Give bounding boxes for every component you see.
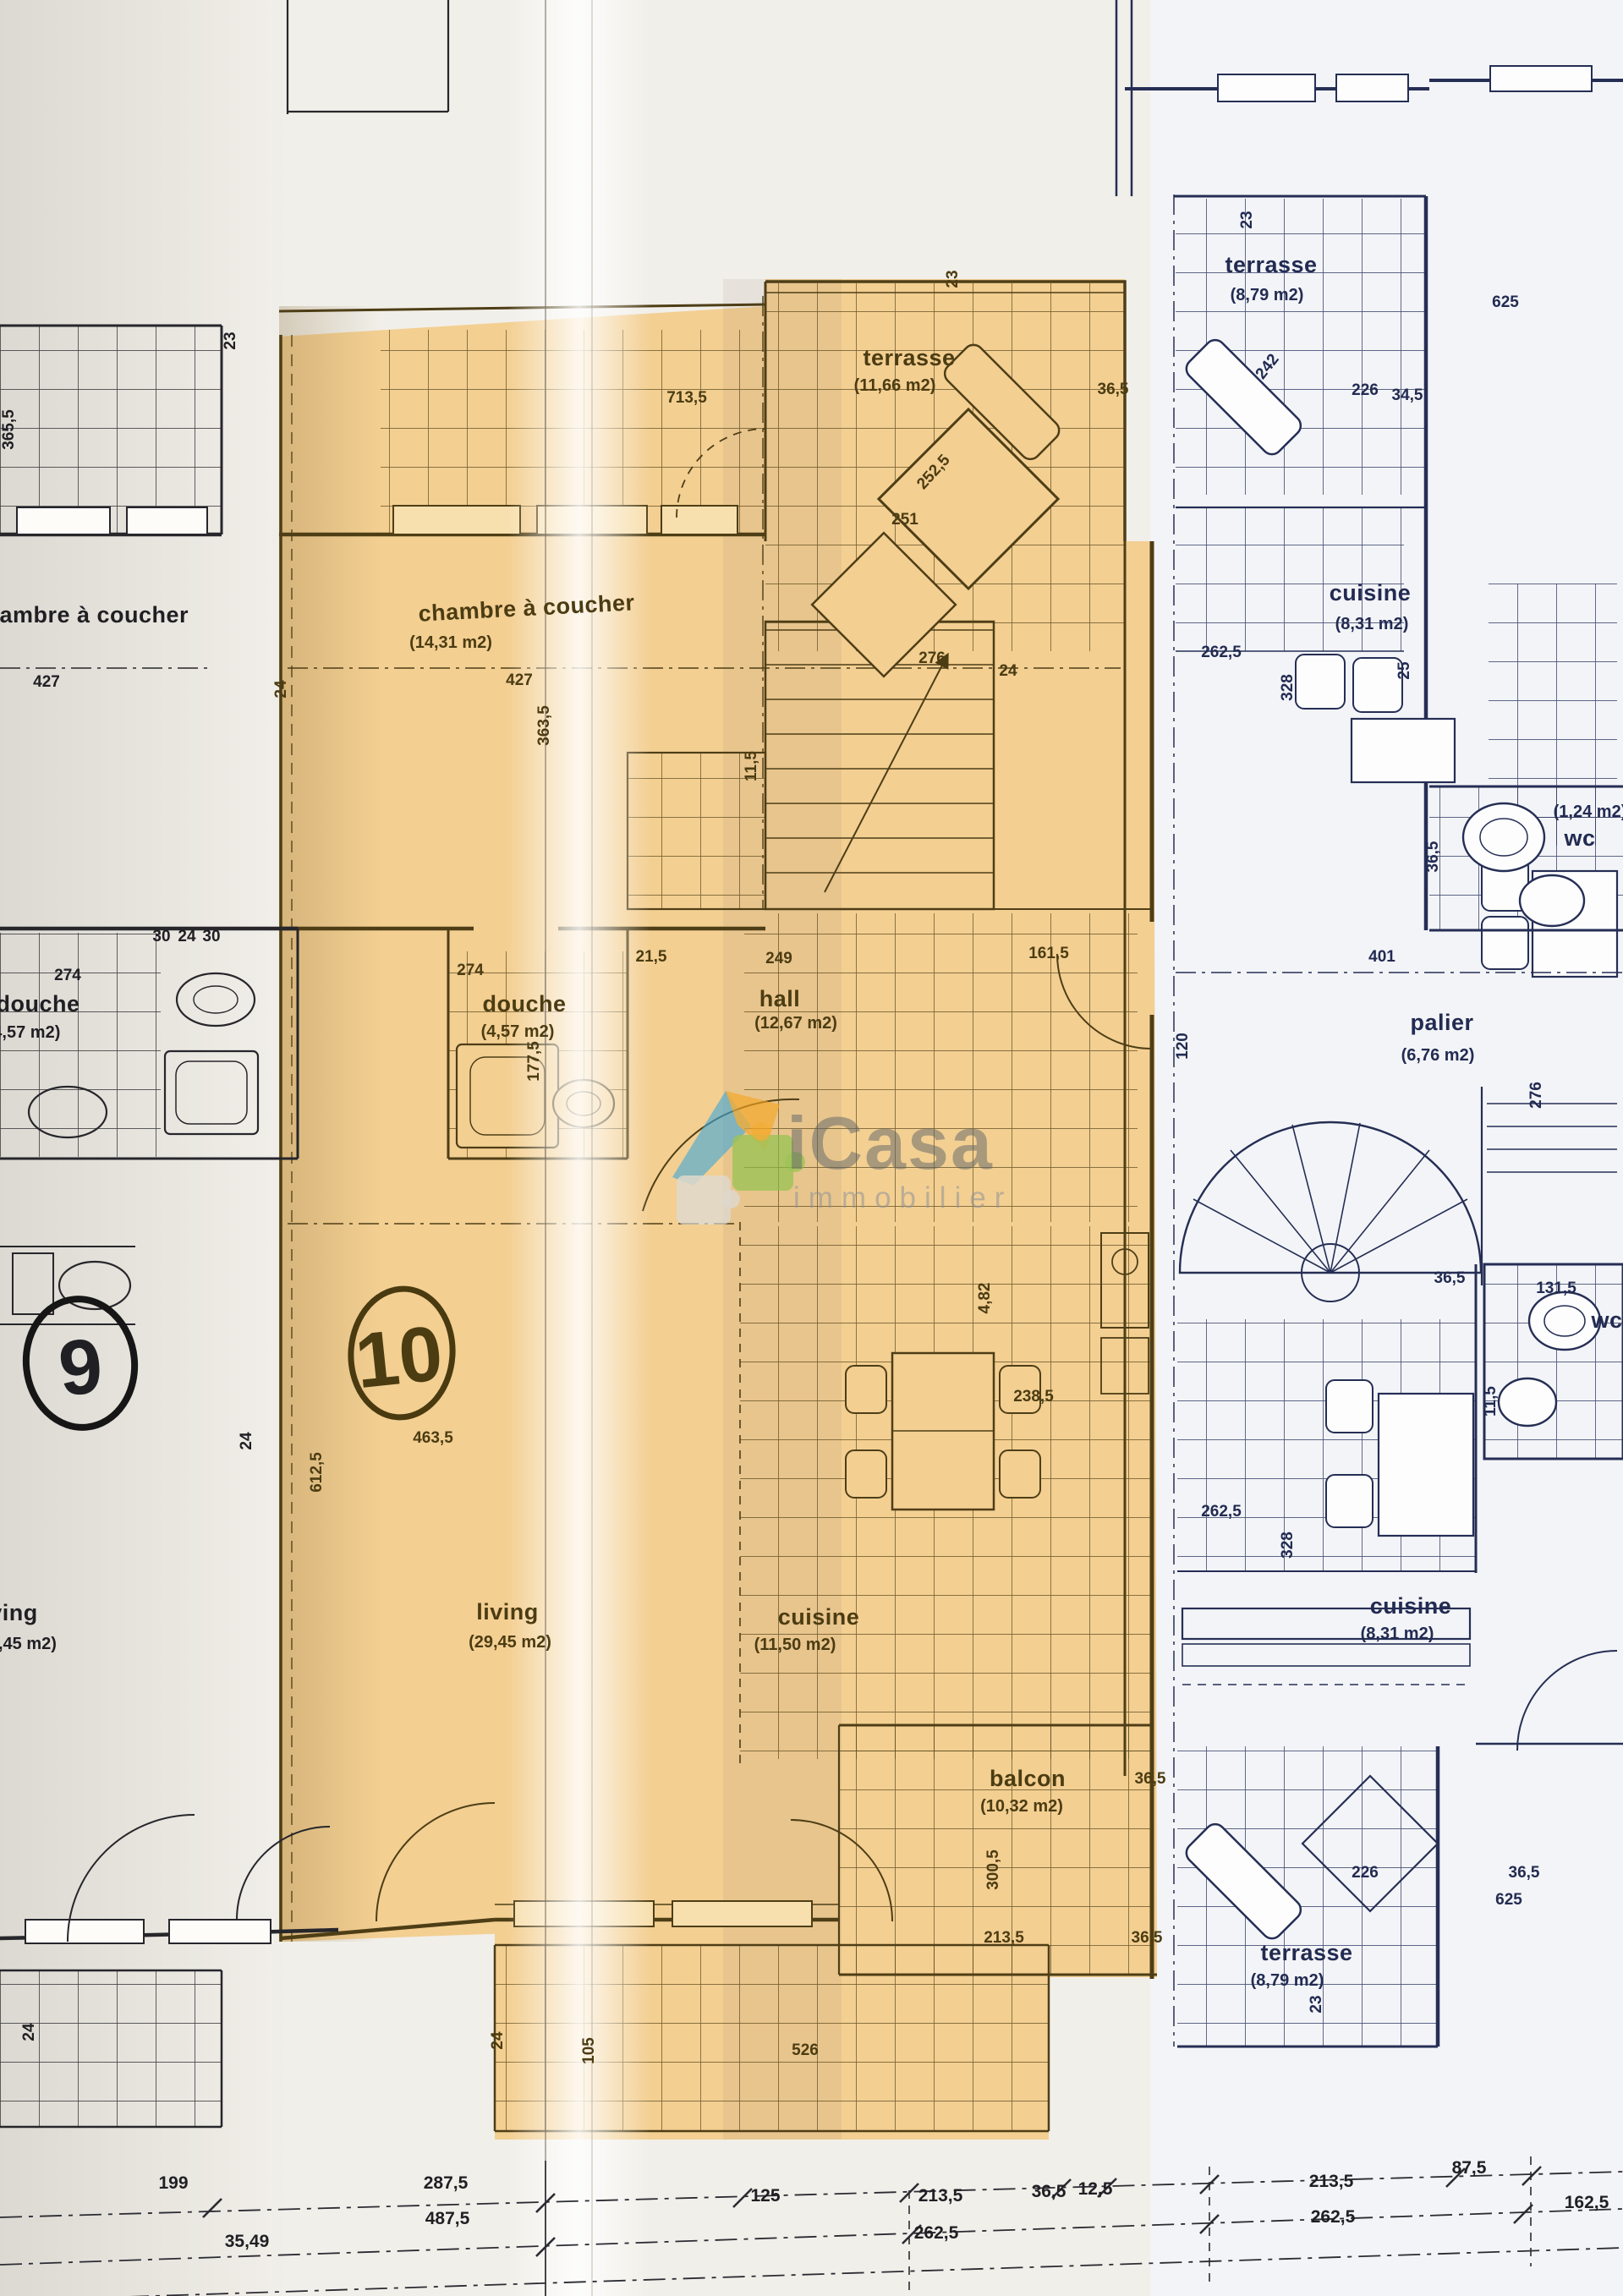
dimension-label: 30: [202, 928, 220, 945]
dimension-label: 328: [1279, 1532, 1297, 1559]
dimension-label: 226: [1352, 1864, 1379, 1882]
dimension-label: 226: [1352, 381, 1379, 399]
room-area-terrasse-u10: (11,66 m2): [854, 376, 936, 395]
room-area-hall-u10: (12,67 m2): [754, 1014, 837, 1033]
dimension-label: 25: [1395, 661, 1413, 680]
room-area-chambre-u10: (14,31 m2): [409, 633, 492, 652]
dimension-label: 427: [33, 673, 60, 691]
dimension-label: 23: [1308, 1995, 1325, 2013]
room-area-cuisine-top: (8,31 m2): [1335, 615, 1409, 633]
dimension-label: 36,5: [1032, 2182, 1066, 2201]
dimension-label: 161,5: [1028, 945, 1069, 962]
room-name-terrasse-u10: terrasse: [863, 345, 955, 370]
dimension-label: 300,5: [984, 1849, 1002, 1890]
room-name-living-u9: living: [0, 1600, 38, 1625]
dimension-label: 463,5: [413, 1429, 453, 1447]
dimension-label: 30: [152, 928, 170, 945]
dimension-label: 249: [765, 950, 792, 967]
dimension-label: 328: [1279, 674, 1297, 701]
dimension-label: 23: [222, 332, 239, 349]
unit10-number: 10: [352, 1310, 447, 1405]
dimension-label: 4,82: [976, 1283, 994, 1314]
room-area-balcon-u10: (10,32 m2): [980, 1797, 1063, 1816]
room-area-terrasse-top: (8,79 m2): [1231, 286, 1304, 304]
dimension-label: 487,5: [425, 2209, 470, 2228]
dimension-label: 23: [944, 270, 962, 288]
room-name-cuisine-top: cuisine: [1330, 580, 1412, 606]
dimension-label: 427: [506, 671, 533, 689]
dimension-label: 87,5: [1452, 2158, 1487, 2178]
dimension-label: 21,5: [636, 948, 667, 966]
dimension-label: 36,5: [1509, 1864, 1540, 1882]
dimension-label: 120: [1174, 1033, 1192, 1060]
room-name-terrasse-low: terrasse: [1260, 1940, 1352, 1965]
dimension-label: 23: [1238, 211, 1256, 228]
dimension-label: 24: [999, 662, 1017, 680]
dimension-label: 287,5: [424, 2173, 469, 2193]
room-area-cuisine-low: (8,31 m2): [1361, 1625, 1434, 1643]
dimension-label: 276: [918, 649, 946, 667]
scanned-floorplan-page: terrasse (11,66 m2) chambre à coucher (1…: [0, 0, 1623, 2296]
room-name-cuisine-low: cuisine: [1370, 1593, 1452, 1619]
room-area-living-u10: (29,45 m2): [469, 1633, 551, 1652]
room-name-chambre-u9: chambre à coucher: [0, 602, 189, 627]
dimension-label: 401: [1368, 948, 1395, 966]
room-area-living-u9: (29,45 m2): [0, 1635, 57, 1653]
dimension-label: 125: [750, 2186, 780, 2206]
dimension-label: 363,5: [535, 705, 553, 746]
dimension-label: 24: [238, 1432, 255, 1450]
dimension-label: 24: [20, 2023, 38, 2041]
room-name-palier: palier: [1410, 1010, 1473, 1035]
dimension-label: 612,5: [308, 1452, 326, 1493]
unit9-number: 9: [55, 1323, 106, 1412]
dimension-label: 276: [1527, 1082, 1545, 1109]
room-name-balcon-u10: balcon: [990, 1766, 1066, 1791]
dimension-label: 131,5: [1536, 1280, 1576, 1297]
dimension-label: 105: [580, 2037, 598, 2064]
dimension-label: 12,5: [1078, 2179, 1113, 2199]
dimension-label: 213,5: [1309, 2172, 1354, 2191]
paper-fold-lines: [507, 0, 651, 2296]
dimension-label: 24: [272, 680, 290, 699]
room-name-terrasse-top: terrasse: [1225, 252, 1317, 277]
dimension-label: 199: [158, 2173, 188, 2193]
room-name-living-u10: living: [476, 1599, 539, 1625]
dimension-label: 162,5: [1565, 2193, 1609, 2212]
dimension-label: 36,5: [1132, 1929, 1163, 1947]
room-name-wc-top: wc: [1563, 825, 1595, 851]
dimension-label: 274: [54, 967, 81, 984]
dimension-label: 625: [1495, 1891, 1522, 1909]
floorplan-canvas: terrasse (11,66 m2) chambre à coucher (1…: [0, 0, 1623, 2296]
room-name-hall-u10: hall: [759, 986, 801, 1011]
room-area-douche-u10: (4,57 m2): [481, 1022, 555, 1041]
room-name-cuisine-u10: cuisine: [778, 1604, 860, 1630]
dimension-label: 262,5: [914, 2223, 959, 2243]
dimension-label: 262,5: [1311, 2207, 1356, 2227]
dimension-label: 251: [891, 511, 918, 529]
room-name-douche-u9: douche: [0, 991, 80, 1016]
dimension-label: 36,5: [1135, 1770, 1166, 1788]
dimension-label: 177,5: [525, 1041, 543, 1082]
dimension-label: 274: [457, 962, 484, 979]
dimension-label: 11,5: [743, 751, 760, 781]
dimension-label: 213,5: [984, 1929, 1024, 1947]
dimension-label: 24: [489, 2031, 507, 2050]
room-name-douche-u10: douche: [482, 991, 566, 1016]
room-area-douche-u9: (4,57 m2): [0, 1023, 60, 1042]
room-name-wc-low: wc: [1590, 1307, 1622, 1333]
dimension-label: 238,5: [1013, 1388, 1054, 1406]
dimension-label: 36,5: [1424, 841, 1442, 872]
dimension-label: 36,5: [1098, 381, 1129, 398]
dimension-label: 262,5: [1201, 644, 1242, 661]
dimension-label: 365,5: [0, 409, 18, 450]
watermark-brand: iCasa: [787, 1101, 994, 1185]
room-area-terrasse-low: (8,79 m2): [1251, 1971, 1324, 1990]
dimension-label: 526: [792, 2041, 819, 2059]
dimension-label: 713,5: [666, 389, 707, 407]
room-area-wc-top: (1,24 m2): [1554, 803, 1623, 821]
dimension-label: 36,5: [1434, 1269, 1466, 1287]
room-area-cuisine-u10: (11,50 m2): [754, 1636, 836, 1654]
dimension-label: 213,5: [918, 2186, 963, 2206]
room-area-palier: (6,76 m2): [1401, 1046, 1475, 1065]
dimension-label: 34,5: [1392, 386, 1423, 404]
watermark-subtitle: immobilier: [793, 1181, 1012, 1214]
dimension-label: 35,49: [225, 2232, 270, 2251]
dimension-label: 24: [178, 928, 196, 945]
dimension-label: 262,5: [1201, 1503, 1242, 1521]
dimension-label: 11,5: [1482, 1386, 1500, 1417]
dimension-label: 625: [1492, 293, 1519, 311]
